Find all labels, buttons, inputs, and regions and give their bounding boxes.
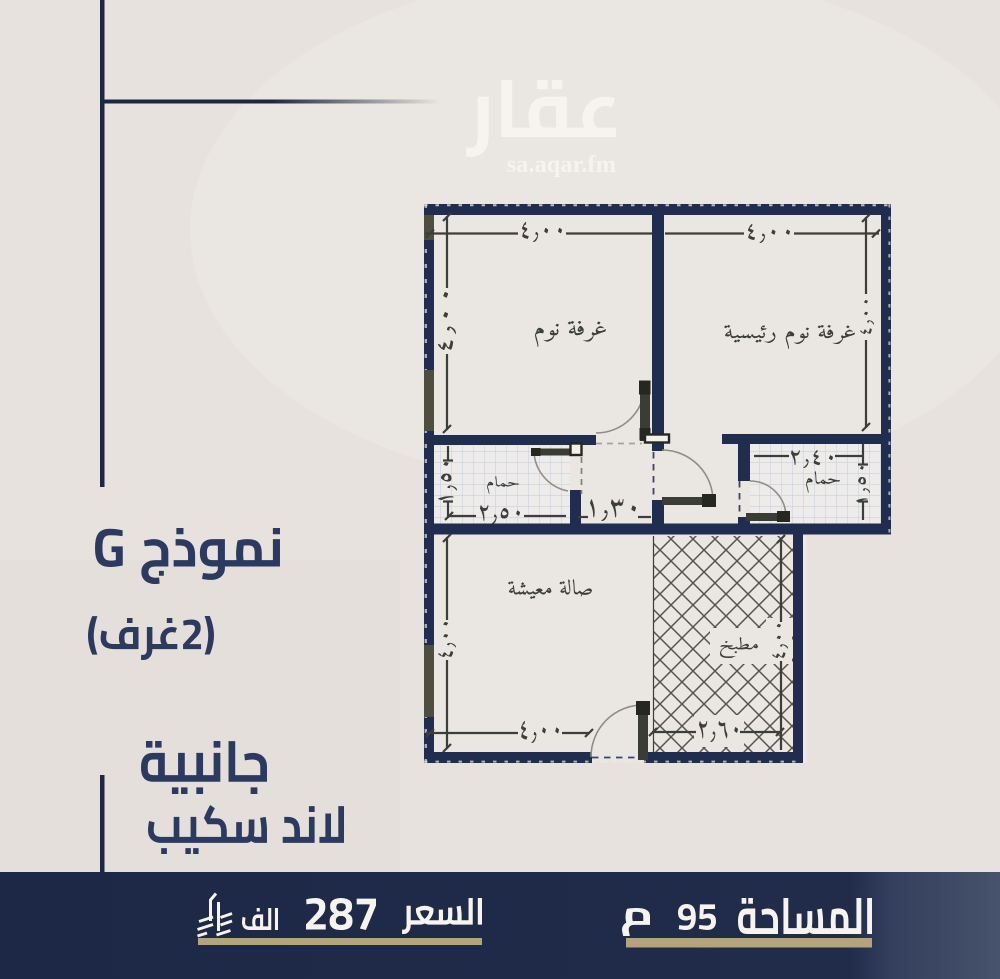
svg-text:sa.aqar.fm: sa.aqar.fm <box>507 151 616 178</box>
